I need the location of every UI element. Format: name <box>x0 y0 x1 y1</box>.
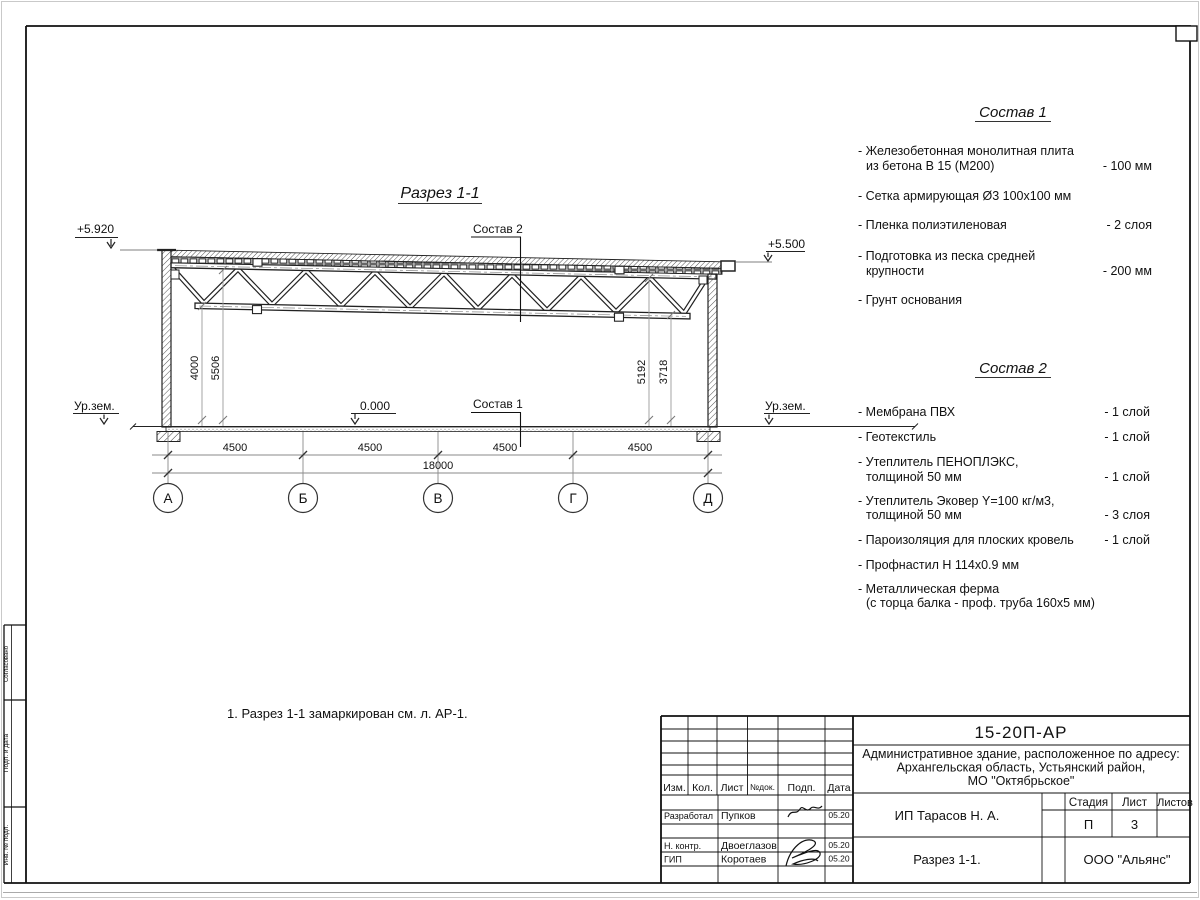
address-line-1: Административное здание, расположенное п… <box>862 747 1179 761</box>
dim-4500-1: 4500 <box>223 442 247 454</box>
comp2-item: - Утеплитель ПЕНОПЛЭКС, <box>858 455 1018 469</box>
doc-number: 15-20П-АР <box>974 723 1067 742</box>
height-dim-right-2: 3718 <box>658 360 670 384</box>
comp2-value: - 1 слой <box>1104 405 1150 419</box>
row-date-2: 05.20 <box>828 854 850 864</box>
drawing-sheet: Согласовано Подп. и дата Инв. № подл. Ра… <box>0 0 1200 900</box>
sheets-label: Листов <box>1157 797 1193 809</box>
row-role-0: Разработал <box>664 811 713 821</box>
left-wall <box>157 250 179 427</box>
comp2-value: - 3 слоя <box>1105 508 1150 522</box>
col-podp: Подп. <box>788 782 816 794</box>
comp2-value: - 1 слой <box>1104 430 1150 444</box>
down-arrow-icon <box>351 414 359 424</box>
side-label-bottom: Инв. № подл. <box>3 825 10 866</box>
client-name: ИП Тарасов Н. А. <box>895 808 1000 823</box>
height-dimensions <box>198 266 675 426</box>
dim-4500-3: 4500 <box>493 442 517 454</box>
height-dim-left-2: 5506 <box>210 356 222 380</box>
axis-a: А <box>163 491 172 506</box>
comp2-item: - Металлическая ферма <box>858 582 999 596</box>
col-kol: Кол. <box>692 782 713 794</box>
roof-edge-box <box>721 261 735 271</box>
comp1-value: - 2 слоя <box>1107 218 1152 232</box>
down-arrow-icon <box>107 239 115 248</box>
floor-and-ground <box>130 424 918 442</box>
comp2-item: - Профнастил Н 114х0.9 мм <box>858 558 1019 572</box>
col-ndok: №док. <box>750 782 775 792</box>
comp2-item: - Мембрана ПВХ <box>858 405 956 419</box>
elevation-left-top: +5.920 <box>75 222 158 250</box>
row-role-1: Н. контр. <box>664 841 701 851</box>
row-role-2: ГИП <box>664 855 682 865</box>
axis-b: Б <box>299 491 308 506</box>
axis-g: Г <box>569 491 577 506</box>
col-data: Дата <box>827 782 850 794</box>
height-dim-left-1: 4000 <box>189 356 201 380</box>
sheet-title: Разрез 1-1. <box>913 852 980 867</box>
comp2-item: - Пароизоляция для плоских кровель <box>858 533 1074 547</box>
elevation-value: 0.000 <box>360 399 390 413</box>
sheet-label: Лист <box>1122 797 1148 809</box>
elevation-value: +5.500 <box>768 237 805 251</box>
composition-list-2: Состав 2 - Мембрана ПВХ - 1 слой - Геоте… <box>858 360 1150 610</box>
axis-bubbles: А Б В Г Д <box>154 484 723 513</box>
callout-floor-label: Состав 1 <box>473 397 523 411</box>
comp1-item: - Грунт основания <box>858 293 962 307</box>
comp2-title: Состав 2 <box>979 360 1047 377</box>
row-date-1: 05.20 <box>828 840 850 850</box>
address-line-3: МО "Октябрьское" <box>968 774 1075 788</box>
signature-icon <box>786 806 822 866</box>
col-izm: Изм. <box>663 782 686 794</box>
comp2-value: - 1 слой <box>1104 470 1150 484</box>
comp2-item: толщиной 50 мм <box>866 470 962 484</box>
comp1-item: - Сетка армирующая Ø3 100х100 мм <box>858 189 1071 203</box>
truss-seat-left <box>171 270 179 279</box>
ground-level-right: Ур.зем. <box>764 399 810 424</box>
down-arrow-icon <box>765 415 773 425</box>
comp1-value: - 200 мм <box>1103 264 1152 278</box>
axis-v: В <box>433 491 442 506</box>
axis-d: Д <box>703 491 712 506</box>
side-label-top: Согласовано <box>4 645 10 682</box>
dim-4500-4: 4500 <box>628 442 652 454</box>
ground-level-left: Ур.зем. <box>73 399 119 424</box>
note-text: 1. Разрез 1-1 замаркирован см. л. АР-1. <box>227 706 468 721</box>
title-block: Изм. Кол. Лист №док. Подп. Дата Разработ… <box>661 716 1193 883</box>
dimension-lines <box>152 432 722 484</box>
left-attribute-column: Согласовано Подп. и дата Инв. № подл. <box>3 625 26 883</box>
section-title: Разрез 1-1 <box>400 185 479 202</box>
comp1-item: - Железобетонная монолитная плита <box>858 144 1074 158</box>
ground-label: Ур.зем. <box>765 399 806 413</box>
zero-level-mark: 0.000 <box>351 399 396 424</box>
height-dim-right-1: 5192 <box>636 360 648 384</box>
row-name-2: Коротаев <box>721 854 767 866</box>
comp1-item: крупности <box>866 264 924 278</box>
comp1-value: - 100 мм <box>1103 159 1152 173</box>
side-label-mid: Подп. и дата <box>3 733 10 772</box>
comp1-item: из бетона В 15 (М200) <box>866 159 994 173</box>
elevation-right-top: +5.500 <box>736 237 805 262</box>
comp2-item: - Утеплитель Эковер Y=100 кг/м3, <box>858 494 1054 508</box>
stage-label: Стадия <box>1069 797 1108 809</box>
sheet-number: 3 <box>1131 817 1138 832</box>
row-name-1: Двоеглазов <box>721 840 777 852</box>
comp2-item: толщиной 50 мм <box>866 508 962 522</box>
company-name: ООО "Альянс" <box>1084 852 1171 867</box>
callout-roof-label: Состав 2 <box>473 222 523 236</box>
composition-list-1: Состав 1 - Железобетонная монолитная пли… <box>858 104 1152 307</box>
truss-seat-right <box>699 276 707 284</box>
address-line-2: Архангельская область, Устьянский район, <box>897 761 1146 775</box>
right-wall <box>699 274 717 427</box>
down-arrow-icon <box>764 253 772 262</box>
comp1-item: - Подготовка из песка средней <box>858 249 1035 263</box>
row-name-0: Пупков <box>721 810 756 822</box>
comp1-title: Состав 1 <box>979 104 1047 121</box>
footing-right <box>697 432 720 442</box>
dim-total: 18000 <box>423 460 454 472</box>
comp2-item: (с торца балка - проф. труба 160х5 мм) <box>866 596 1095 610</box>
callout-floor: Состав 1 <box>471 397 523 447</box>
comp2-item: - Геотекстиль <box>858 430 936 444</box>
col-list: Лист <box>721 782 744 794</box>
footing-left <box>157 432 180 442</box>
stage-value: П <box>1084 817 1093 832</box>
dim-4500-2: 4500 <box>358 442 382 454</box>
comp1-item: - Пленка полиэтиленовая <box>858 218 1007 232</box>
section-drawing-canvas: Согласовано Подп. и дата Инв. № подл. Ра… <box>0 0 1200 900</box>
row-date-0: 05.20 <box>828 810 850 820</box>
floor-slab <box>166 427 710 432</box>
comp2-value: - 1 слой <box>1104 533 1150 547</box>
down-arrow-icon <box>100 415 108 425</box>
ground-label: Ур.зем. <box>74 399 115 413</box>
elevation-value: +5.920 <box>77 222 114 236</box>
